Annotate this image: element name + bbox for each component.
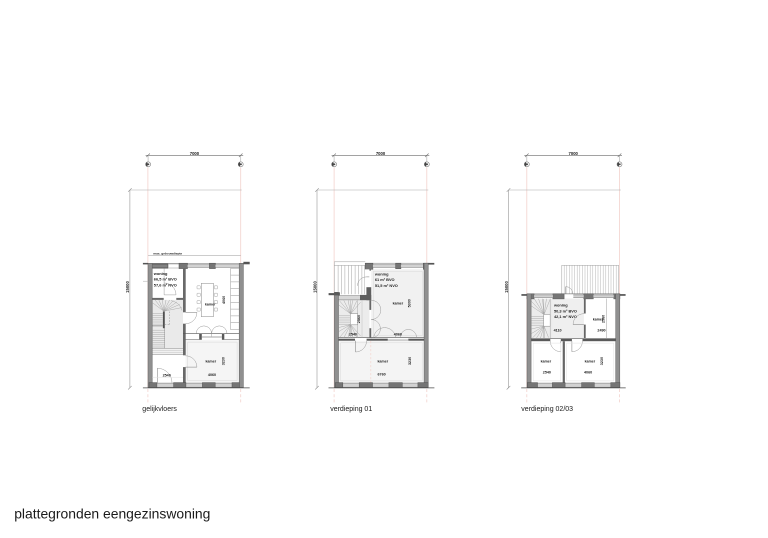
svg-text:7000: 7000 (376, 151, 386, 156)
svg-text:57,6 m² NVO: 57,6 m² NVO (154, 282, 177, 287)
svg-text:woning: woning (153, 271, 168, 276)
svg-text:66,5 m² BVO: 66,5 m² BVO (154, 277, 177, 282)
svg-text:4060: 4060 (394, 332, 402, 336)
svg-text:2540: 2540 (543, 371, 551, 375)
svg-text:kamer: kamer (206, 360, 217, 364)
svg-text:woning: woning (553, 303, 568, 308)
svg-text:3230: 3230 (221, 357, 225, 365)
svg-text:50,3 m² BVO: 50,3 m² BVO (554, 308, 577, 313)
svg-text:kamer: kamer (393, 302, 404, 306)
svg-text:15000: 15000 (125, 281, 130, 293)
svg-text:4060: 4060 (222, 296, 226, 304)
svg-text:51,5 m² NVO: 51,5 m² NVO (375, 283, 398, 288)
svg-text:kamer: kamer (541, 360, 552, 364)
svg-text:max. gebouwdiepte: max. gebouwdiepte (153, 251, 182, 255)
svg-text:4110: 4110 (554, 328, 562, 332)
svg-text:gelijkvloers: gelijkvloers (142, 406, 177, 413)
svg-text:5300: 5300 (408, 299, 412, 307)
svg-text:2540: 2540 (163, 373, 171, 377)
svg-text:7000: 7000 (190, 151, 200, 156)
svg-text:kamer: kamer (205, 303, 216, 307)
svg-text:plattegronden eengezinswoning: plattegronden eengezinswoning (14, 506, 210, 522)
svg-text:2560: 2560 (601, 315, 605, 323)
svg-text:woning: woning (374, 272, 389, 277)
svg-text:6760: 6760 (377, 372, 385, 376)
svg-text:2490: 2490 (597, 329, 605, 333)
svg-text:kamer: kamer (585, 360, 596, 364)
svg-text:kamer: kamer (378, 360, 389, 364)
svg-text:61 m² BVO: 61 m² BVO (375, 277, 395, 282)
svg-text:2560: 2560 (357, 315, 361, 323)
svg-text:verdieping 02/03: verdieping 02/03 (521, 406, 573, 413)
svg-text:3230: 3230 (600, 357, 604, 365)
svg-text:7000: 7000 (569, 151, 579, 156)
svg-text:2540: 2540 (349, 332, 357, 336)
svg-text:4060: 4060 (584, 371, 592, 375)
svg-text:4060: 4060 (208, 373, 216, 377)
svg-text:15000: 15000 (312, 281, 317, 293)
svg-text:verdieping 01: verdieping 01 (330, 406, 372, 413)
svg-text:15000: 15000 (504, 281, 509, 293)
svg-text:42,1 m² NVO: 42,1 m² NVO (554, 314, 577, 319)
svg-text:3230: 3230 (408, 357, 412, 365)
